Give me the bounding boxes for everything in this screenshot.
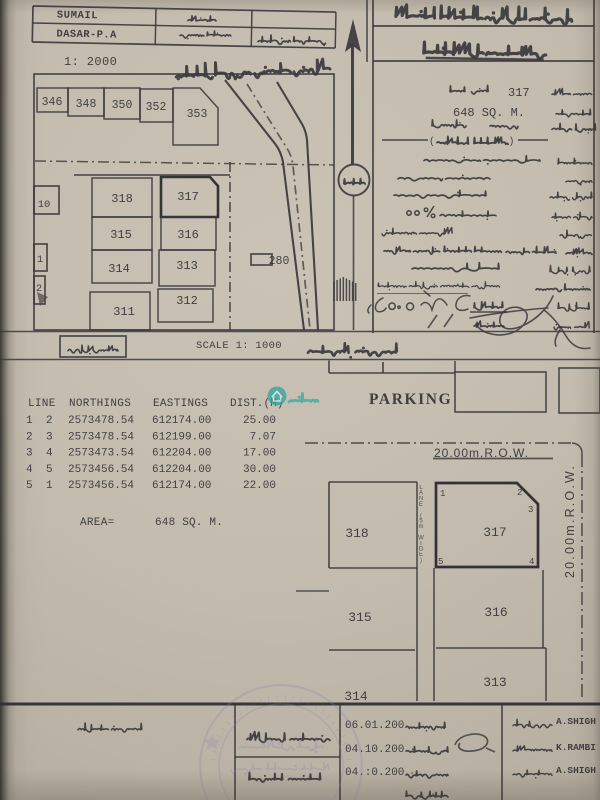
svg-text:3: 3 xyxy=(528,505,533,515)
svg-text:353: 353 xyxy=(187,108,208,121)
svg-text:1: 1 xyxy=(26,415,33,427)
svg-text:316: 316 xyxy=(177,228,199,242)
svg-text:1: 1 xyxy=(37,254,43,266)
svg-text:312: 312 xyxy=(176,294,198,308)
svg-text:2573478.54: 2573478.54 xyxy=(68,431,134,443)
svg-text:5: 5 xyxy=(26,480,33,492)
svg-text:SUMAIL: SUMAIL xyxy=(57,9,99,22)
svg-text:20.00m.R.O.W.: 20.00m.R.O.W. xyxy=(563,464,577,578)
svg-text:17.00: 17.00 xyxy=(243,448,276,460)
svg-text:317: 317 xyxy=(508,86,530,100)
svg-text:3: 3 xyxy=(26,448,33,460)
svg-text:316: 316 xyxy=(484,605,507,620)
svg-text:348: 348 xyxy=(76,98,97,111)
svg-text:SCALE 1: 1000: SCALE 1: 1000 xyxy=(196,340,282,352)
svg-text:5: 5 xyxy=(46,464,53,476)
svg-text:A.SHIGH: A.SHIGH xyxy=(556,716,596,727)
svg-text:317: 317 xyxy=(177,190,199,204)
svg-text:315: 315 xyxy=(110,228,132,242)
svg-text:04.:0.200: 04.:0.200 xyxy=(345,767,404,779)
svg-text:311: 311 xyxy=(113,305,135,319)
svg-text:4: 4 xyxy=(529,557,534,567)
svg-text:LINE: LINE xyxy=(28,398,56,410)
svg-text:10: 10 xyxy=(38,199,51,211)
svg-text:m: m xyxy=(419,524,424,530)
svg-text:314: 314 xyxy=(344,689,368,704)
svg-text:612199.00: 612199.00 xyxy=(152,431,211,443)
svg-text:): ) xyxy=(420,558,422,564)
svg-text:DASAR-P.A: DASAR-P.A xyxy=(56,28,117,41)
svg-text:648 SQ. M.: 648 SQ. M. xyxy=(453,106,525,120)
svg-text:317: 317 xyxy=(483,525,506,540)
svg-text:25.00: 25.00 xyxy=(243,415,276,427)
svg-text:280: 280 xyxy=(269,255,290,268)
svg-text:2573456.54: 2573456.54 xyxy=(68,480,134,492)
svg-text:AREA=: AREA= xyxy=(80,517,115,529)
svg-text:612174.00: 612174.00 xyxy=(152,480,211,492)
svg-text:612204.00: 612204.00 xyxy=(152,448,211,460)
svg-text:E: E xyxy=(419,502,423,508)
svg-text:346: 346 xyxy=(42,96,63,109)
svg-text:1: 1 xyxy=(440,489,445,499)
svg-text:04.10.200: 04.10.200 xyxy=(345,744,404,756)
svg-text:318: 318 xyxy=(111,192,133,206)
svg-text:352: 352 xyxy=(146,101,167,114)
svg-text:314: 314 xyxy=(108,262,130,276)
svg-text:2573478.54: 2573478.54 xyxy=(68,415,134,427)
svg-text:2573456.54: 2573456.54 xyxy=(68,464,134,476)
svg-text:2: 2 xyxy=(26,431,33,443)
svg-text:612174.00: 612174.00 xyxy=(152,415,211,427)
svg-text:612204.00: 612204.00 xyxy=(152,464,211,476)
svg-text:1: 2000: 1: 2000 xyxy=(64,55,117,69)
svg-text:4: 4 xyxy=(26,464,33,476)
svg-text:2: 2 xyxy=(46,415,53,427)
svg-text:EASTINGS: EASTINGS xyxy=(153,398,208,410)
svg-text:PARKING: PARKING xyxy=(369,391,452,408)
svg-text:30.00: 30.00 xyxy=(243,464,276,476)
svg-text:4: 4 xyxy=(46,448,53,460)
svg-text:A.SHIGH: A.SHIGH xyxy=(556,765,596,776)
svg-text:315: 315 xyxy=(348,610,371,625)
svg-text:K.RAMBI: K.RAMBI xyxy=(556,742,596,753)
svg-text:NORTHINGS: NORTHINGS xyxy=(69,398,131,410)
svg-text:648 SQ. M.: 648 SQ. M. xyxy=(155,517,223,529)
svg-text:1: 1 xyxy=(46,480,53,492)
svg-text:313: 313 xyxy=(176,259,198,273)
svg-text:313: 313 xyxy=(483,675,506,690)
svg-text:5: 5 xyxy=(438,557,443,567)
svg-text:2573473.54: 2573473.54 xyxy=(68,448,134,460)
svg-text:22.00: 22.00 xyxy=(243,480,276,492)
svg-text:(: ( xyxy=(430,136,434,147)
svg-text:3: 3 xyxy=(46,431,53,443)
svg-text:): ) xyxy=(510,136,513,147)
svg-text:318: 318 xyxy=(345,526,368,541)
svg-text:350: 350 xyxy=(112,99,133,112)
svg-text:2: 2 xyxy=(517,488,522,498)
svg-text:7.07: 7.07 xyxy=(250,431,276,443)
